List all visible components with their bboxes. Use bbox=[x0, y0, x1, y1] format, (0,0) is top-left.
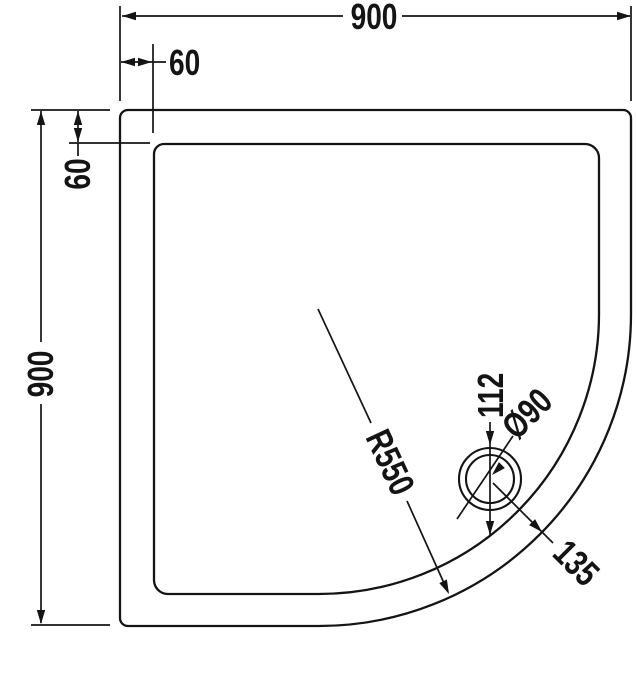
arrowhead-icon bbox=[439, 580, 449, 595]
dim-top-width-label: 900 bbox=[351, 0, 398, 37]
dim-left-height-label: 900 bbox=[21, 351, 61, 398]
tray-body bbox=[120, 110, 631, 626]
arrowhead-right-icon bbox=[138, 58, 152, 66]
arrowhead-left-icon bbox=[122, 12, 136, 20]
dim-front-radius: R550 bbox=[318, 309, 449, 594]
arrowhead-upper-icon bbox=[486, 431, 494, 445]
tray-outer-outline bbox=[120, 110, 631, 626]
technical-drawing-canvas: 900 60 60 900 bbox=[0, 0, 637, 675]
dim-left-inset: 60 bbox=[31, 110, 150, 190]
dim-drain-edge-label: 135 bbox=[545, 532, 607, 594]
dim-front-radius-label: R550 bbox=[358, 423, 423, 501]
arrowhead-up-icon bbox=[37, 111, 45, 125]
arrowhead-right-icon bbox=[617, 12, 631, 20]
leader-line bbox=[493, 483, 553, 543]
dim-left-inset-label: 60 bbox=[58, 158, 98, 189]
shower-tray-drawing: 900 60 60 900 bbox=[0, 0, 637, 675]
arrowhead-down-icon bbox=[37, 610, 45, 624]
dim-drain-edge: 135 bbox=[493, 483, 607, 594]
dim-drain-offset: 112 bbox=[471, 373, 511, 535]
dim-top-inset: 60 bbox=[121, 43, 200, 133]
arrowhead-down-icon bbox=[74, 128, 82, 142]
arrowhead-left-icon bbox=[121, 58, 135, 66]
dim-top-inset-label: 60 bbox=[169, 43, 200, 83]
arrowhead-up-icon bbox=[74, 111, 82, 125]
